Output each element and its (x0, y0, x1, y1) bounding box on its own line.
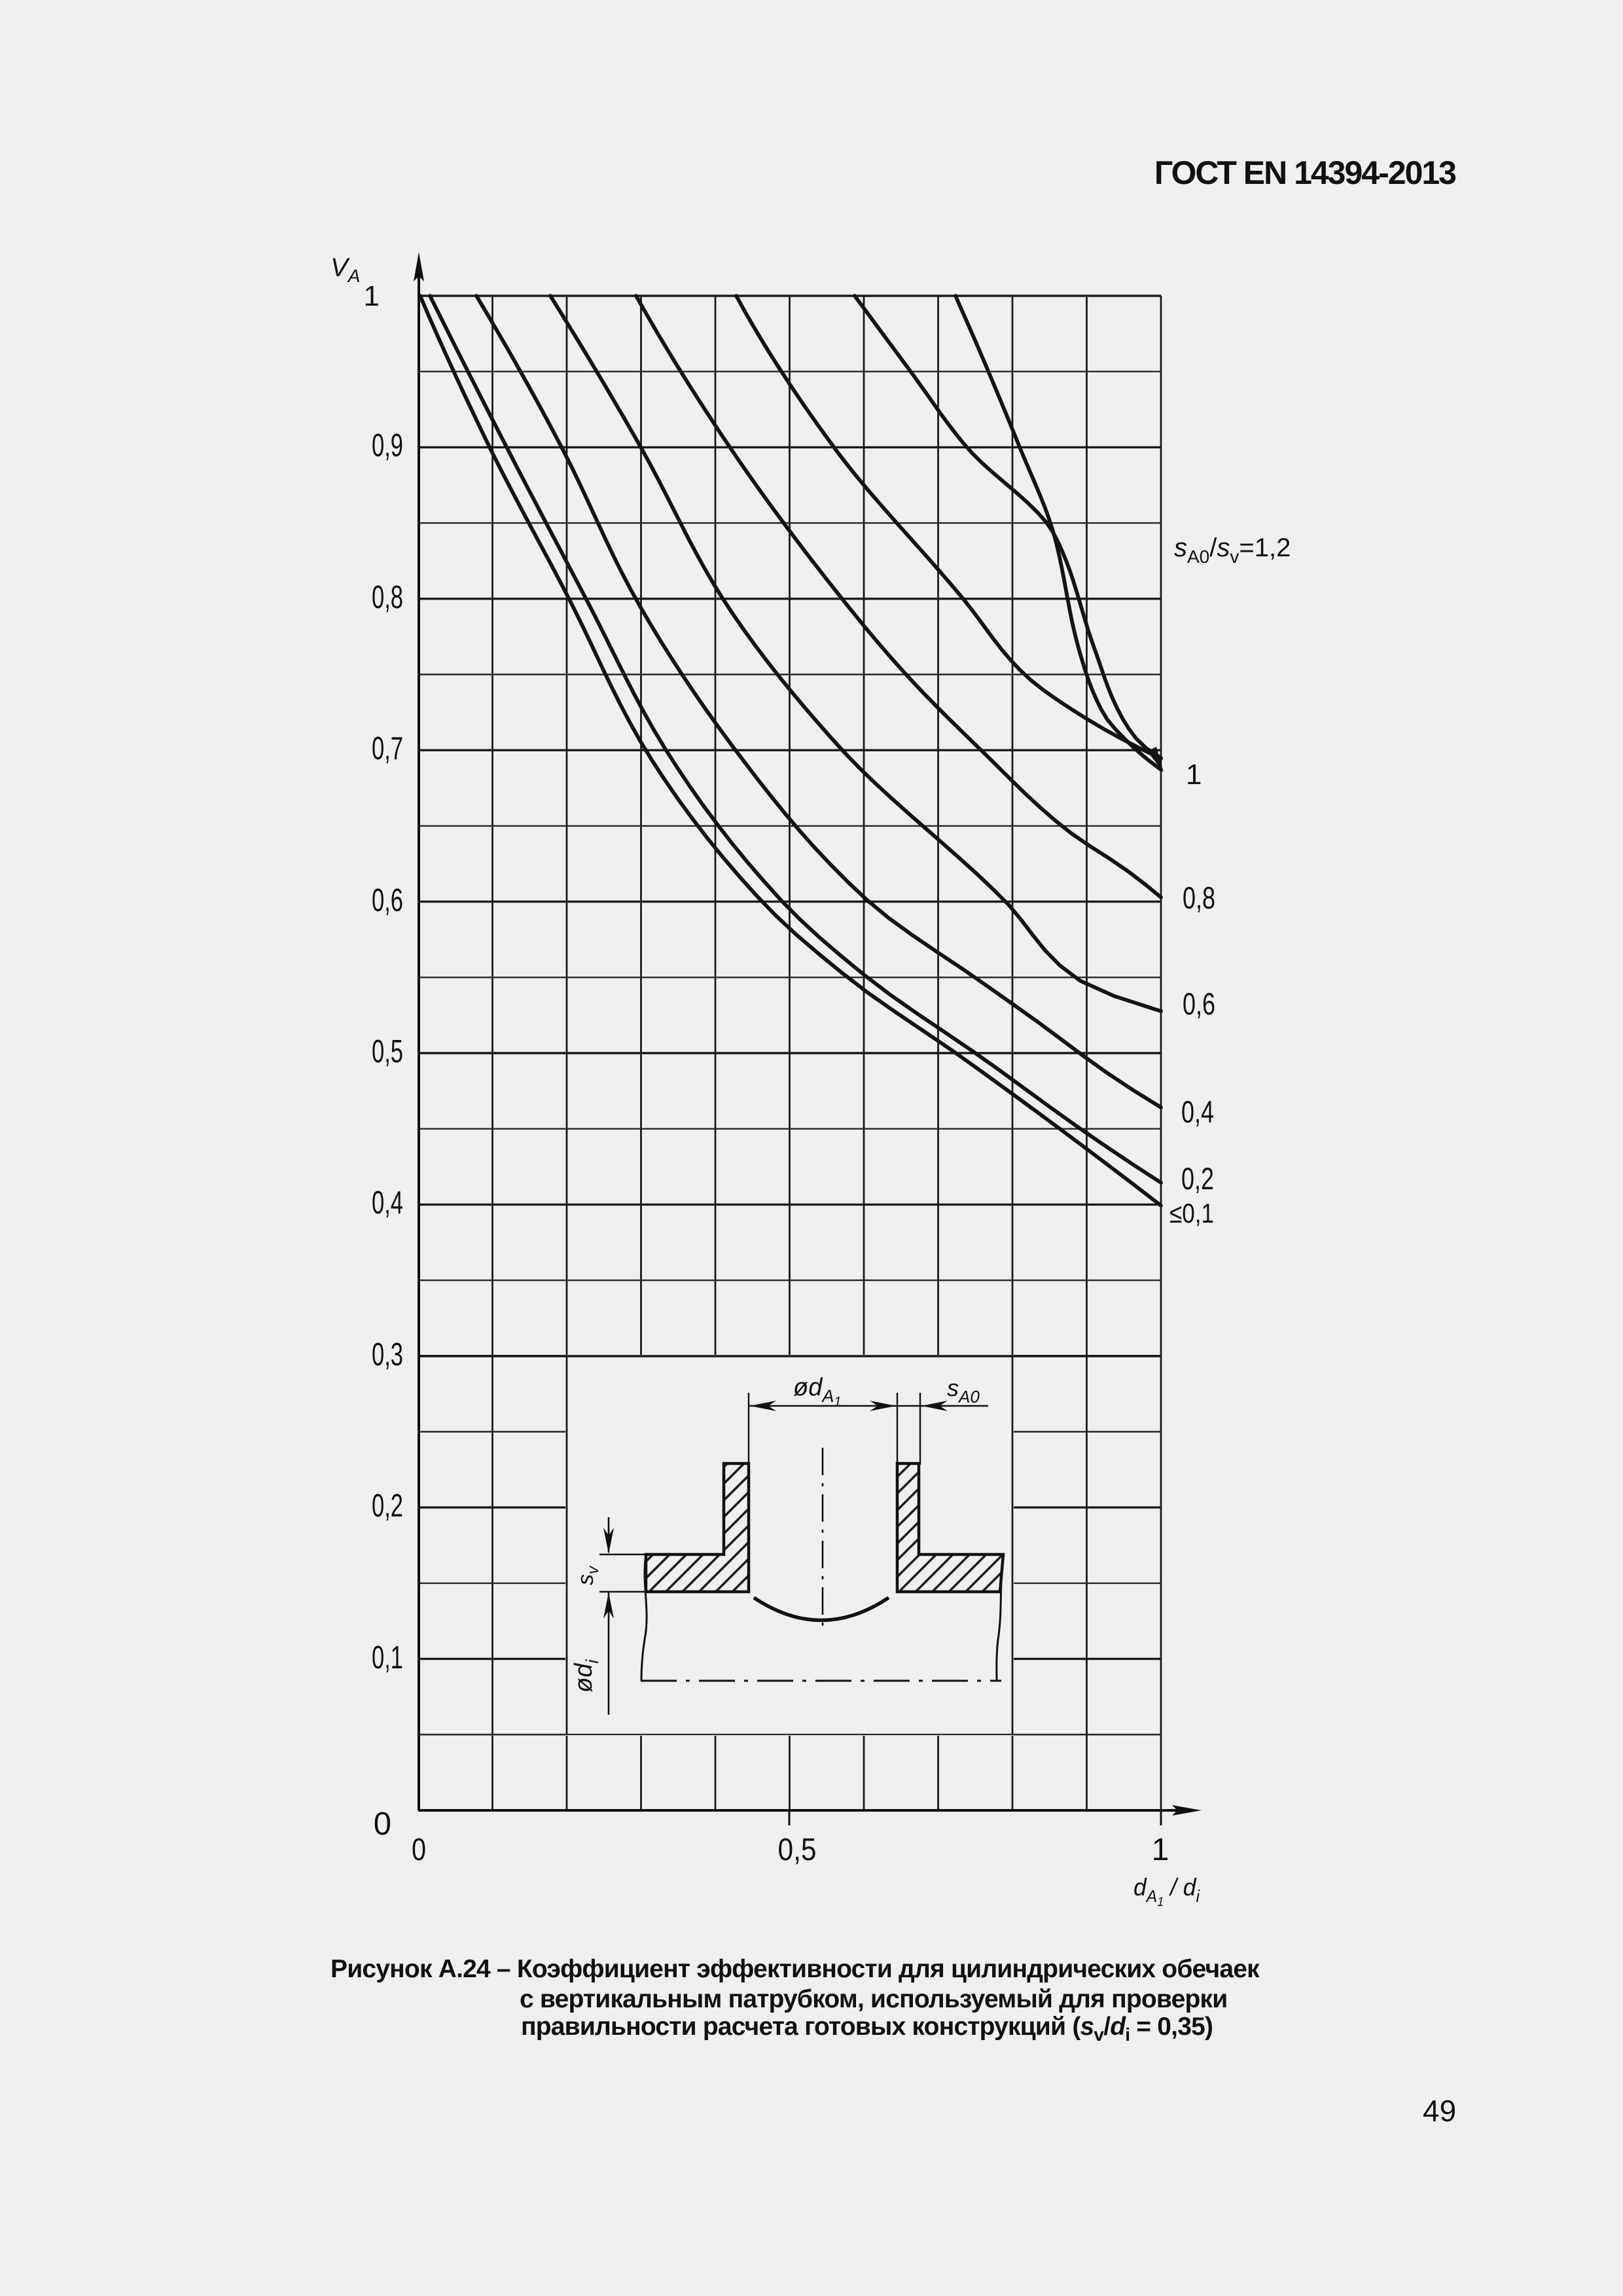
svg-text:0,2: 0,2 (372, 1488, 403, 1524)
svg-text:0,2: 0,2 (1181, 1161, 1214, 1196)
svg-text:0,1: 0,1 (372, 1640, 403, 1676)
svg-text:0,7: 0,7 (372, 731, 403, 766)
svg-text:0,6: 0,6 (372, 883, 403, 918)
svg-text:Рисунок А.24 – Коэффициент эфф: Рисунок А.24 – Коэффициент эффективности… (330, 1955, 1260, 1983)
svg-text:правильности расчета готовых к: правильности расчета готовых конструкций… (521, 2013, 1213, 2045)
svg-text:0,6: 0,6 (1183, 986, 1215, 1021)
svg-text:0: 0 (374, 1806, 391, 1842)
svg-text:0: 0 (412, 1833, 426, 1867)
svg-text:0,8: 0,8 (1183, 880, 1215, 915)
svg-text:ødi: ødi (570, 1659, 602, 1693)
svg-text:0,8: 0,8 (372, 580, 403, 615)
svg-text:0,5: 0,5 (372, 1034, 403, 1069)
svg-text:1: 1 (1186, 759, 1202, 791)
svg-text:0,4: 0,4 (372, 1185, 403, 1221)
svg-text:0,5: 0,5 (778, 1833, 817, 1867)
svg-text:0,9: 0,9 (372, 428, 403, 463)
svg-text:0,4: 0,4 (1181, 1094, 1214, 1129)
svg-text:ГОСТ EN 14394-2013: ГОСТ EN 14394-2013 (1154, 154, 1455, 191)
svg-text:≤0,1: ≤0,1 (1169, 1198, 1214, 1229)
svg-text:49: 49 (1423, 2094, 1456, 2128)
svg-text:0,3: 0,3 (372, 1337, 403, 1372)
svg-text:1: 1 (1152, 1833, 1169, 1867)
svg-text:1: 1 (364, 280, 380, 312)
svg-text:с вертикальным патрубком, испо: с вертикальным патрубком, используемый д… (520, 1985, 1227, 2013)
